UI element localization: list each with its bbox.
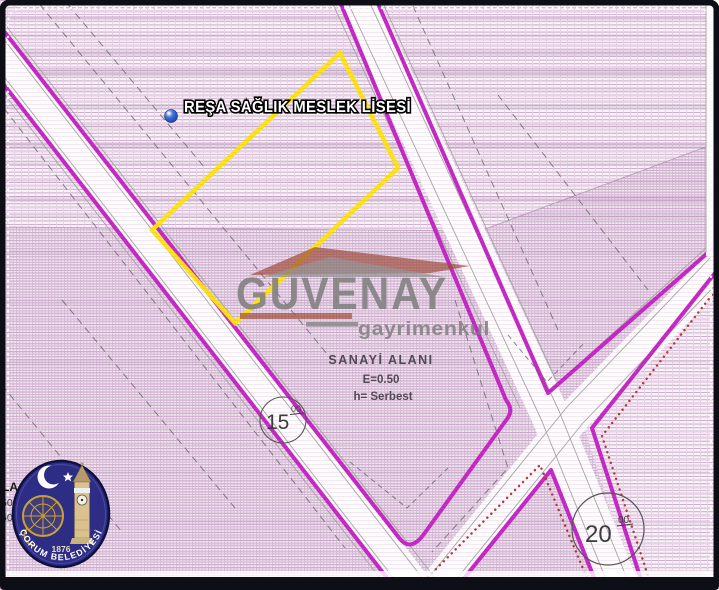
- blue-pin-highlight: [167, 112, 170, 115]
- road-15-value: 15: [266, 411, 289, 434]
- zoning-map-screenshot: 15 00 20 00 SANAYİ ALANI E=0.50 h= Serbe…: [0, 0, 719, 590]
- watermark-brand: GUVENAY: [236, 268, 448, 319]
- blue-pin-icon: [165, 110, 178, 123]
- zone-name: SANAYİ ALANI: [328, 352, 433, 367]
- zone-emsal: E=0.50: [363, 374, 400, 386]
- watermark-subtitle: gayrimenkul: [358, 319, 490, 340]
- road-15-decimals: 00: [291, 404, 301, 414]
- zone-height: h= Serbest: [353, 391, 412, 403]
- watermark-gray-bar: [306, 322, 358, 327]
- school-label: REŞA SAĞLIK MESLEK LİSESİ: [184, 98, 411, 116]
- bottom-margin-strip: [6, 571, 713, 577]
- watermark-brick-bar: [240, 313, 352, 319]
- map-canvas: 15 00 20 00 SANAYİ ALANI E=0.50 h= Serbe…: [0, 0, 719, 590]
- road-20-value: 20: [585, 521, 612, 548]
- corum-municipality-logo: 1876 ÇORUM BELEDİYESİ: [13, 461, 109, 567]
